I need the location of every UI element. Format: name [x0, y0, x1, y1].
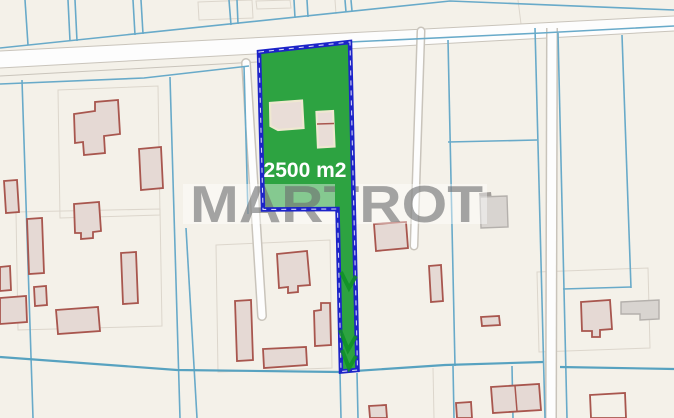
cadastral-map[interactable]: MARTROT 2500 m2 [0, 0, 674, 418]
vertical-road [551, 28, 552, 418]
map-viewport[interactable]: MARTROT 2500 m2 [0, 0, 674, 418]
parcel-area-label: 2500 m2 [264, 159, 347, 182]
